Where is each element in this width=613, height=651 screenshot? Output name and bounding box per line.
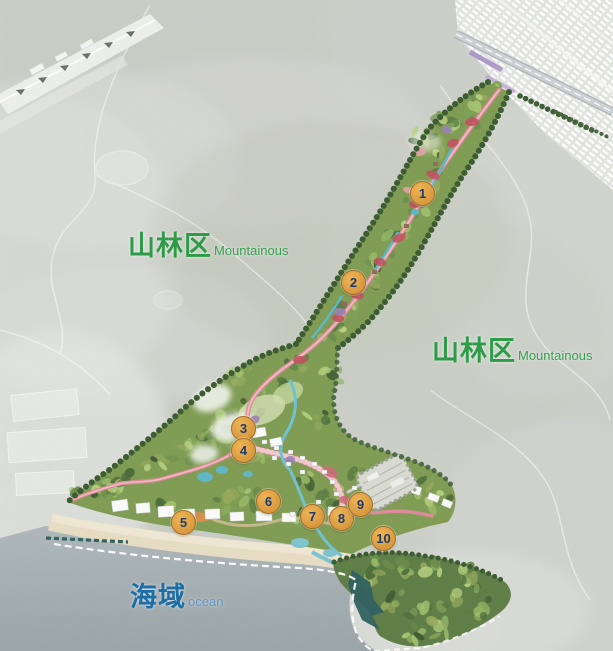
poi-marker-number: 9 <box>357 498 364 511</box>
grain-overlay <box>0 0 613 651</box>
poi-marker-2[interactable]: 2 <box>341 270 366 295</box>
poi-marker-4[interactable]: 4 <box>231 438 256 463</box>
poi-marker-6[interactable]: 6 <box>256 489 281 514</box>
poi-marker-7[interactable]: 7 <box>300 504 325 529</box>
poi-marker-number: 2 <box>350 276 357 289</box>
poi-marker-number: 10 <box>376 532 390 545</box>
masterplan-map: 山林区 Mountainous 山林区 Mountainous 海域 ocean… <box>0 0 613 651</box>
poi-marker-5[interactable]: 5 <box>171 510 196 535</box>
poi-marker-9[interactable]: 9 <box>348 492 373 517</box>
poi-marker-1[interactable]: 1 <box>410 181 435 206</box>
map-artwork <box>0 0 613 651</box>
poi-marker-number: 1 <box>419 187 426 200</box>
poi-marker-10[interactable]: 10 <box>371 526 396 551</box>
poi-marker-number: 7 <box>309 510 316 523</box>
poi-marker-number: 4 <box>240 444 247 457</box>
poi-marker-number: 3 <box>240 422 247 435</box>
poi-marker-number: 6 <box>265 495 272 508</box>
poi-marker-number: 5 <box>180 516 187 529</box>
poi-marker-number: 8 <box>338 512 345 525</box>
